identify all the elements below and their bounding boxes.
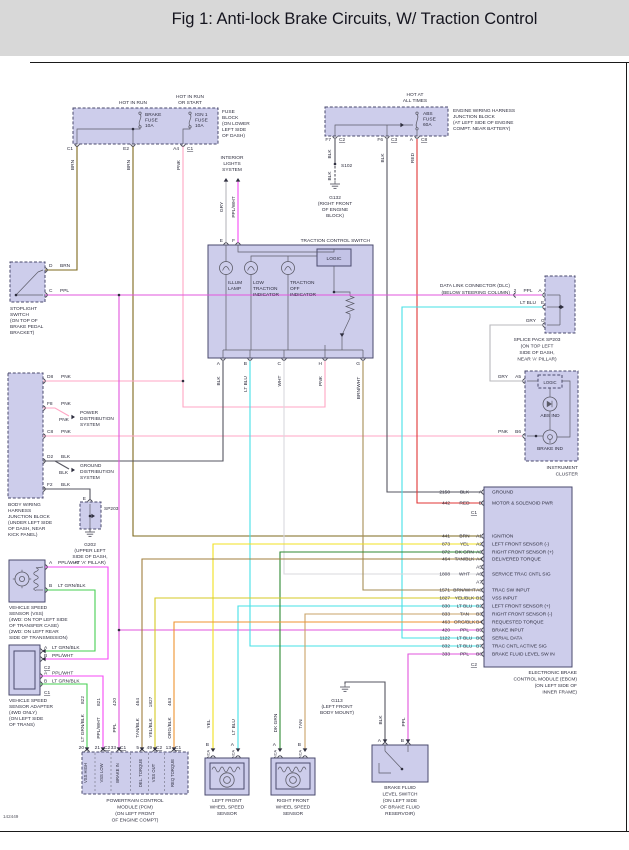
diagram-label: FUSE [222, 109, 235, 115]
diagram-label: POWER [80, 410, 99, 416]
arrow-icon [236, 178, 241, 182]
ebcm-pin: B2 [476, 604, 482, 610]
diagram-label: DK GRN [273, 713, 279, 732]
diagram-label: IGN 1 [195, 112, 208, 118]
diagram-label: PPL/WHT [52, 653, 73, 659]
diagram-label: PPL/WHT [231, 196, 237, 217]
wire-wht [284, 361, 481, 574]
ebcm-circuit-number: 464 [442, 557, 450, 563]
diagram-label: PNK [61, 374, 72, 380]
diagram-label: INNER FRAME) [542, 690, 577, 696]
diagram-label: C [49, 288, 53, 294]
diagram-label: D2 [47, 454, 53, 460]
junction-dot [182, 380, 185, 383]
diagram-label: E [541, 300, 544, 306]
diagram-label: BRN [60, 263, 71, 269]
diagram-label: (ON LEFT SIDE OF [535, 683, 577, 689]
diagram-label: BLK [327, 149, 333, 159]
diagram-label: SIDE OF DASH, [519, 350, 554, 356]
diagram-label: MODULE (PCM) [117, 805, 153, 811]
ebcm-wire-color: PPL [460, 628, 469, 634]
diagram-label: C1 [120, 745, 126, 751]
ebcm-circuit-number: 833 [442, 612, 450, 618]
ebcm-wire-color: PPL [460, 652, 469, 658]
diagram-label: (AT LEFT SIDE OF ENGINE [453, 120, 514, 126]
diagram-label: YEL/BLK [148, 717, 154, 737]
diagram-label: SENSOR (VSS) [9, 611, 44, 617]
ebcm-circuit-number: 2150 [439, 490, 450, 496]
diagram-label: WHT [277, 375, 283, 386]
ebcm-pin: A3 [476, 550, 482, 556]
junction-dot [334, 163, 337, 166]
ebcm-wire-color: TAN/BLK [455, 557, 475, 563]
diagram-label: VSS LOW [99, 763, 104, 782]
ebcm-pin-function: RIGHT FRONT SENSOR (+) [492, 550, 554, 556]
diagram-label: 49 [147, 745, 153, 751]
ebcm-wire-color: YEL [460, 542, 469, 548]
ebcm-pin-function: GROUND [492, 490, 514, 496]
diagram-label: BRN [126, 159, 132, 170]
diagram-label: ABS [423, 111, 433, 117]
diagram-label: WHEEL SPEED [276, 805, 311, 811]
diagram-label: F8 [47, 401, 53, 407]
diagram-label: INDICATOR [290, 292, 316, 298]
diagram-label: TAN [298, 719, 304, 729]
diagram-label: (4WD: ON TOP LEFT SIDE [9, 617, 68, 623]
ebcm-wire-color: LT BLU [457, 604, 473, 610]
diagram-label: OF DASH) [222, 133, 245, 139]
ebcm-circuit-number: 442 [442, 501, 450, 507]
diagram-label: C [278, 361, 282, 367]
diagram-label: PNK [61, 401, 72, 407]
diagram-label: LOGIC [543, 380, 556, 385]
diagram-label: S102 [341, 163, 353, 169]
diagram-label: PNK [498, 429, 509, 435]
wire-blk [387, 139, 481, 492]
diagram-label: 21 [95, 745, 101, 751]
diagram-label: BRAKE FLUID [384, 785, 416, 791]
diagram-label: F [232, 238, 235, 244]
diagram-label: JUNCTION BLOCK [8, 514, 51, 520]
ebcm-pin-function: TRAC CNTL ACTIVE SIG [492, 644, 547, 650]
diagram-label: C8 [421, 137, 427, 143]
diagram-label: PNK [176, 159, 182, 170]
junction-dot [132, 128, 135, 131]
ebcm-circuit-number: 1571 [439, 588, 450, 594]
diagram-label: (ON LEFT SIDE [383, 798, 417, 804]
ebcm-pin-function: SERVICE TRAC CNTL SIG [492, 572, 551, 578]
diagram-label: SENSOR ADAPTER [9, 704, 54, 710]
junction-dot [535, 435, 538, 438]
ebcm-circuit-number: 873 [442, 542, 450, 548]
diagram-label: SENSOR [283, 811, 304, 817]
ebcm-wire-color: LT BLU [457, 636, 473, 642]
diagram-label: 463 [167, 698, 173, 706]
diagram-label: G202 [84, 542, 96, 548]
ebcm-wire-color: DK GRN [455, 550, 474, 556]
diagram-label: C2 [471, 662, 477, 668]
diagram-label: A [231, 742, 235, 748]
diagram-label: G [541, 318, 545, 324]
diagram-label: 821 [96, 698, 102, 706]
ebcm-wire-color: BRN [459, 534, 470, 540]
diagram-label: PPL [60, 288, 69, 294]
diagram-label: A [44, 645, 48, 651]
diagram-label: BLK [61, 454, 71, 460]
diagram-label: C8 [47, 429, 53, 435]
wire-pplwht [40, 676, 103, 750]
diagram-label: NCA [299, 750, 303, 758]
diagram-label: DISTRIBUTION [80, 416, 114, 422]
diagram-label: OF DASH, NEAR [8, 526, 46, 532]
diagram-label: NCA [274, 750, 278, 758]
arrow-icon [278, 748, 283, 752]
diagram-label: B [298, 742, 301, 748]
wire-pnk [43, 408, 69, 416]
diagram-label: A [538, 288, 542, 294]
arrow-icon [224, 178, 229, 182]
diagram-label: FUSE [145, 118, 158, 124]
diagram-label: BLK [380, 153, 386, 163]
diagram-label: LT BLU [231, 719, 237, 735]
ebcm-pin: A1 [476, 534, 482, 540]
ebcm-circuit-number: 420 [442, 628, 450, 634]
diagram-label: BRAKE PEDAL [10, 324, 44, 330]
diagram-label: PNK [61, 429, 72, 435]
diagram-label: 1827 [148, 696, 154, 707]
arrow-icon [406, 739, 411, 743]
diagram-label: DISTRIBUTION [80, 469, 114, 475]
diagram-label: (2WD: ON LEFT REAR [9, 629, 59, 635]
ebcm-wire-color: BRN/WHT [453, 588, 475, 594]
diagram-label: C2 [156, 745, 162, 751]
diagram-label: B [206, 742, 209, 748]
diagram-label: A [49, 560, 53, 566]
diagram-label: BLOCK) [326, 213, 344, 219]
ebcm-pin: A8 [476, 588, 482, 594]
diagram-label: D8 [47, 374, 53, 380]
ebcm-pin: B6 [476, 636, 482, 642]
diagram-label: SP203 [104, 506, 119, 512]
diagram-label: OF ENGINE COMPT) [112, 818, 159, 824]
arrow-icon [211, 748, 216, 752]
diagram-label: PNK [318, 375, 324, 386]
wire-blk [55, 461, 69, 469]
diagram-label: F7 [325, 137, 331, 143]
ebcm-circuit-number: 1122 [440, 636, 451, 642]
ebcm-circuit-number: 463 [442, 620, 450, 626]
diagram-label: NCA [232, 750, 236, 758]
vss [9, 560, 45, 602]
diagram-label: D [49, 263, 53, 269]
diagram-label: BLK [327, 171, 333, 181]
wire-orgblk [174, 622, 481, 750]
diagram-label: C3 [391, 137, 397, 143]
diagram-label: B [49, 583, 52, 589]
diagram-label: LT BLU [520, 300, 536, 306]
diagram-label: F2 [47, 482, 53, 488]
diagram-label: OF ENGINE [322, 207, 348, 213]
diagram-label: TRACTION [290, 280, 315, 286]
diagram-label: GRY [498, 374, 509, 380]
diagram-label: (BELOW STEERING COLUMN) [442, 290, 511, 296]
junction-dot [15, 294, 18, 297]
diagram-label: RESERVOIR) [385, 811, 415, 817]
diagram-label: INTERIOR [221, 155, 244, 161]
ebcm-pin-function: BRAKE FLUID LEVEL SW IN [492, 652, 555, 658]
diagram-label: LEFT FRONT [212, 798, 242, 804]
diagram-label: OF TRANSFER CASE) [9, 623, 59, 629]
diagram-label: (UNDER LEFT SIDE [8, 520, 52, 526]
wire-yelblk [155, 598, 481, 750]
diagram-label: SYSTEM [80, 475, 100, 481]
diagram-label: SYSTEM [80, 422, 100, 428]
diagram-label: F6 [377, 137, 383, 143]
diagram-label: LOW [253, 280, 264, 286]
ebcm-wire-color: LT BLU [457, 644, 473, 650]
ebcm-pin: B8 [476, 652, 482, 658]
diagram-label: TAN/BLK [135, 717, 141, 737]
diagram-label: HOT IN RUN [119, 100, 147, 106]
diagram-label: PNK [59, 417, 70, 423]
diagram-label: E [83, 496, 86, 502]
ebcm-wire-color: BLK [460, 490, 470, 496]
diagram-label: 420 [112, 698, 118, 706]
diagram-label: OFF [290, 286, 300, 292]
ebcm-pin: A7 [476, 580, 482, 586]
diagram-label: 10A [145, 123, 154, 129]
diagram-label: 20 [79, 745, 85, 751]
diagram-label: A5 [515, 374, 521, 380]
diagram-label: ABS IND [540, 413, 560, 419]
diagram-label: COMPT. NEAR BATTERY) [453, 126, 511, 132]
body-junction-block [8, 373, 43, 498]
diagram-label: B [244, 361, 247, 367]
diagram-label: H [319, 361, 323, 367]
diagram-label: DATA LINK CONNECTOR (DLC) [440, 283, 510, 289]
diagram-label: LEVEL SWITCH [382, 792, 418, 798]
diagram-label: 5 [136, 745, 139, 751]
diagram-label: (LEFT FRONT [321, 704, 352, 710]
diagram-label: B [44, 679, 47, 685]
diagram-label: BODY MOUNT) [320, 710, 354, 716]
ebcm-circuit-number: 1827 [439, 596, 450, 602]
diagram-label: OR START [178, 100, 202, 106]
diagram-label: PPL/WHT [96, 717, 102, 738]
diagram-label: (4WD ONLY) [9, 710, 37, 716]
diagram-label: LOGIC [327, 256, 342, 262]
diagram-label: G [356, 361, 360, 367]
arrow-icon [303, 748, 308, 752]
diagram-label: POWERTRAIN CONTROL [106, 798, 164, 804]
wire-red [417, 139, 481, 503]
ebcm-circuit-number: 1808 [439, 572, 450, 578]
diagram-label: BRN [70, 159, 76, 170]
diagram-label: BODY WIRING [8, 502, 41, 508]
diagram-label: NEAR 'A' PILLAR) [517, 357, 557, 363]
diagram-label: LT GRN/BLK [58, 583, 86, 589]
junction-dot [118, 629, 121, 632]
diagram-label: (RIGHT FRONT [318, 201, 352, 207]
diagram-label: DEL. TORQUE [138, 759, 143, 787]
diagram-label: A [217, 361, 221, 367]
diagram-label: RED [410, 152, 416, 163]
ebcm-pin-function: LEFT FRONT SENSOR (-) [492, 542, 550, 548]
diagram-label: LT BLU [243, 376, 249, 392]
diagram-label: FUSE [195, 118, 208, 124]
diagram-label: C1 [175, 745, 181, 751]
diagram-label: B [401, 738, 404, 744]
diagram-label: BLOCK [222, 115, 239, 121]
wiring-diagram: 2150BLKAGROUND442REDBMOTOR & SOLENOID PW… [0, 0, 629, 850]
ebcm-wire-color: TAN [460, 612, 470, 618]
diagram-label: A4 [173, 146, 179, 152]
diagram-label: C2 [104, 745, 110, 751]
ebcm-pin-function: MOTOR & SOLENOID PWR [492, 501, 553, 507]
diagram-label: C1 [67, 146, 73, 152]
diagram-label: SWITCH [10, 312, 29, 318]
arrow-icon [236, 748, 241, 752]
diagram-label: LT GRN/BLK [52, 645, 80, 651]
diagram-label: LAMP [228, 286, 241, 292]
diagram-label: ENGINE WIRING HARNESS [453, 108, 515, 114]
diagram-label: ORG/BLK [167, 717, 173, 739]
diagram-label: BLK [216, 376, 222, 386]
diagram-label: BRN/WHT [356, 377, 362, 399]
diagram-label: 13 [166, 745, 172, 751]
diagram-label: LIGHTS [223, 161, 240, 167]
arrow-icon [383, 739, 388, 743]
diagram-label: ELECTRONIC BRAKE [528, 670, 577, 676]
diagram-label: 60A [423, 122, 432, 128]
diagram-label: ALL TIMES [403, 98, 427, 104]
brake-fluid-switch [372, 745, 428, 782]
diagram-label: (ON LOWER [222, 121, 250, 127]
diagram-label: VSS HIGH [83, 763, 88, 783]
junction-dot [89, 515, 92, 518]
diagram-label: PPL [523, 288, 532, 294]
diagram-label: REQ TORQUE [170, 759, 175, 787]
diagram-label: (ON TOP OF [10, 318, 38, 324]
diagram-label: SYSTEM [222, 167, 242, 173]
diagram-label: SIDE OF DASH, [72, 554, 107, 560]
diagram-label: VSS OUT [151, 763, 156, 782]
diagram-label: OF TRANS) [9, 722, 35, 728]
diagram-label: PPL/WHT [58, 560, 79, 566]
diagram-label: (UPPER LEFT [74, 548, 105, 554]
diagram-label: PPL [112, 723, 118, 732]
diagram-label: LT GRN/BLK [80, 713, 86, 741]
diagram-label: C2 [44, 665, 50, 671]
diagram-label: TRACTION [253, 286, 278, 292]
wire-tan [305, 614, 481, 749]
diagram-label: G113 [331, 698, 343, 704]
ebcm-pin: B3 [476, 612, 482, 618]
diagram-label: WHEEL SPEED [210, 805, 245, 811]
diagram-label: E2 [123, 146, 129, 152]
diagram-label: C1 [471, 510, 477, 516]
diagram-label: ILLUM [228, 280, 242, 286]
diagram-label: INDICATOR [253, 292, 279, 298]
ebcm-circuit-number: 832 [442, 644, 450, 650]
diagram-label: JUNCTION BLOCK [453, 114, 496, 120]
diagram-label: A [273, 742, 277, 748]
ebcm-pin: B1 [476, 596, 482, 602]
diagram-label: C1 [187, 146, 193, 152]
diagram-label: SPLICE PACK SP203 [514, 337, 561, 343]
ebcm-pin-function: LEFT FRONT SENSOR (+) [492, 604, 551, 610]
diagram-label: 822 [80, 696, 86, 704]
ebcm-pin-function: TRAC SW INPUT [492, 588, 530, 594]
ebcm-circuit-number: 333 [442, 652, 450, 658]
diagram-label: B [44, 653, 47, 659]
ebcm-pin: A2 [476, 542, 482, 548]
ebcm-circuit-number: 441 [442, 534, 450, 540]
diagram-label: A [410, 137, 414, 143]
junction-dot [401, 768, 404, 771]
diagram-label: G132 [329, 195, 341, 201]
junction-dot [333, 291, 336, 294]
diagram-label: SIDE OF TRANSMISSION) [9, 635, 68, 641]
diagram-label: HOT IN RUN [176, 94, 204, 100]
diagram-label: FUSE [423, 117, 436, 123]
diagram-label: BLK [59, 470, 69, 476]
diagram-label: 10A [195, 123, 204, 129]
junction-dot [118, 294, 121, 297]
diagram-label: TRACTION CONTROL SWITCH [301, 238, 371, 244]
diagram-label: LT GRN/BLK [52, 679, 80, 685]
diagram-label: BLK [61, 482, 71, 488]
diagram-label: BLK [378, 715, 384, 725]
diagram-label: C1 [44, 690, 50, 696]
ebcm-pin: A4 [476, 557, 482, 563]
ebcm-circuit-number: 830 [442, 604, 450, 610]
diagram-label: SENSOR [217, 811, 238, 817]
diagram-label: CONTROL MODULE (EBCM) [513, 677, 577, 683]
diagram-label: STOPLIGHT [10, 306, 37, 312]
diagram-label: B6 [515, 429, 521, 435]
diagram-label: CLUSTER [556, 472, 579, 478]
diagram-label: (ON TOP LEFT [521, 344, 554, 350]
ebcm-pin: A5 [476, 565, 482, 571]
ebcm-pin: B7 [476, 644, 482, 650]
diagram-label: OF BRAKE FLUID [380, 805, 420, 811]
diagram-label: KICK PANEL) [8, 532, 38, 538]
diagram-label: BRAKE IN [115, 763, 120, 783]
arrow-icon [71, 468, 75, 473]
diagram-label: GRY [219, 201, 225, 212]
ebcm-pin-function: VSS INPUT [492, 596, 517, 602]
diagram-label: HARNESS [8, 508, 31, 514]
diagram-label: A [378, 738, 382, 744]
diagram-label: INSTRUMENT [547, 465, 579, 471]
ebcm-pin-function: DELIVERED TORQUE [492, 557, 541, 563]
diagram-label: (ON LEFT SIDE [9, 716, 43, 722]
diagram-label: VEHICLE SPEED [9, 698, 48, 704]
diagram-label: VEHICLE SPEED [9, 605, 48, 611]
diagram-label: GROUND [80, 463, 102, 469]
ebcm-pin: B5 [476, 628, 482, 634]
ebcm-pin: B4 [476, 620, 482, 626]
ebcm-pin-function: REQUESTED TORQUE [492, 620, 544, 626]
diagram-label: (ON LEFT FRONT [115, 811, 155, 817]
arrow-icon [71, 415, 75, 420]
diagram-label: RIGHT FRONT [277, 798, 310, 804]
ebcm-pin-function: BRAKE INPUT [492, 628, 524, 634]
diagram-label: 33 [111, 745, 117, 751]
diagram-label: PPL/WHT [52, 671, 73, 677]
ebcm-pin-function: RIGHT FRONT SENSOR (-) [492, 612, 553, 618]
